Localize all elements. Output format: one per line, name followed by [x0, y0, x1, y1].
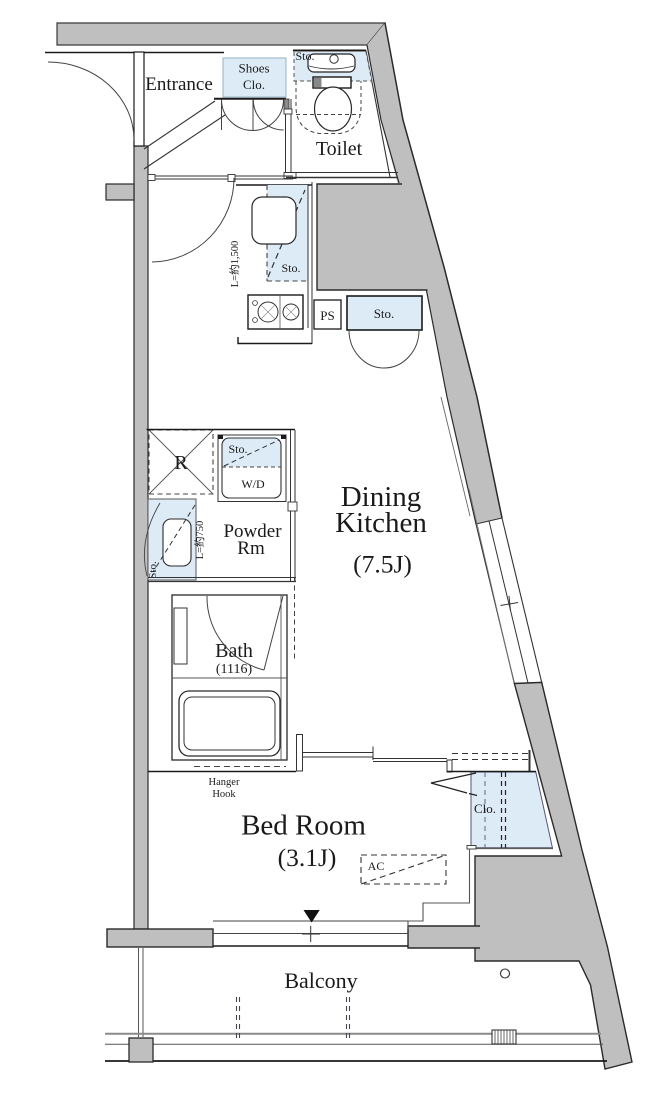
svg-text:Sto.: Sto.	[147, 561, 159, 579]
svg-text:Hook: Hook	[212, 789, 236, 800]
svg-text:Hanger: Hanger	[209, 777, 240, 788]
svg-text:Rm: Rm	[237, 538, 265, 559]
svg-text:Bath: Bath	[215, 640, 253, 662]
svg-text:Entrance: Entrance	[145, 74, 213, 95]
svg-text:Kitchen: Kitchen	[335, 507, 427, 539]
svg-text:W/D: W/D	[241, 477, 265, 491]
svg-text:(7.5J): (7.5J)	[353, 550, 412, 579]
svg-text:PS: PS	[320, 308, 334, 323]
svg-text:Sto.: Sto.	[295, 49, 314, 63]
svg-text:Bed Room: Bed Room	[241, 810, 366, 842]
svg-text:Balcony: Balcony	[284, 968, 357, 993]
svg-text:(3.1J): (3.1J)	[278, 843, 337, 872]
svg-text:L=約750: L=約750	[193, 521, 206, 560]
svg-text:Shoes: Shoes	[238, 61, 269, 76]
svg-text:AC: AC	[368, 859, 385, 873]
svg-text:L=約1,500: L=約1,500	[228, 241, 241, 287]
svg-text:Sto.: Sto.	[228, 442, 247, 456]
svg-text:Clo.: Clo.	[243, 77, 265, 92]
svg-text:Sto.: Sto.	[281, 261, 300, 275]
svg-text:(1116): (1116)	[216, 662, 253, 677]
svg-text:Clo.: Clo.	[474, 801, 496, 816]
svg-text:Sto.: Sto.	[374, 306, 395, 321]
svg-text:R: R	[174, 452, 188, 474]
svg-text:Toilet: Toilet	[316, 138, 363, 160]
